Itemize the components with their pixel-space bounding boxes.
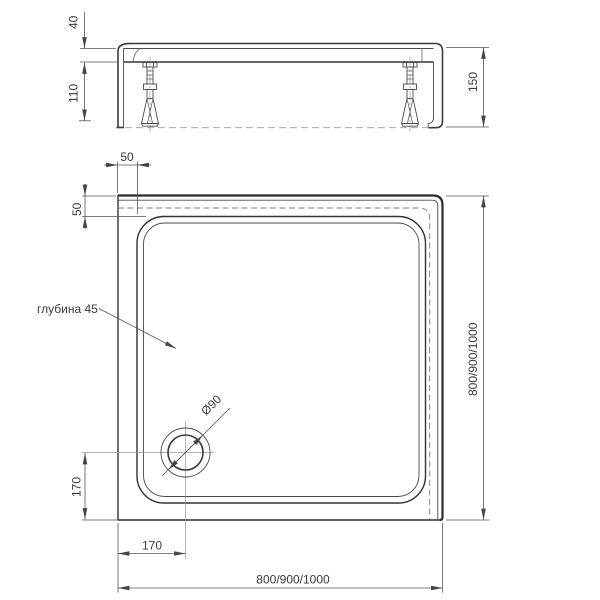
dim-drain-diameter-label: Ø90 — [198, 392, 224, 418]
dim-total-height-label: 150 — [466, 72, 480, 92]
dim-edge-offset-left-label: 50 — [70, 202, 84, 216]
dim-drain-offset-horizontal-label: 170 — [142, 539, 162, 553]
depth-annotation: глубина 45 — [37, 302, 176, 349]
side-view-right-band-inner — [428, 62, 433, 128]
dim-overall-width-label: 800/900/1000 — [256, 573, 330, 587]
side-view-left-corner-seam — [133, 49, 140, 63]
dim-overall-depth-label: 800/900/1000 — [466, 322, 480, 396]
side-view — [117, 44, 443, 133]
plan-view — [82, 196, 443, 559]
dim-rim-height-label: 40 — [67, 15, 81, 29]
side-view-outer-outline — [118, 44, 443, 128]
shower-tray-drawing: 40 110 150 — [0, 0, 600, 600]
dim-edge-offset-left: 50 — [70, 184, 146, 229]
dim-frame-height: 110 — [67, 63, 92, 121]
depth-note-label: глубина 45 — [37, 302, 98, 316]
dim-overall-width: 800/900/1000 — [118, 523, 443, 593]
dim-drain-offset-horizontal: 170 — [118, 523, 186, 593]
dim-edge-offset-top: 50 — [104, 150, 151, 214]
dim-total-height: 150 — [446, 48, 489, 128]
dim-rim-height: 40 — [67, 12, 118, 62]
technical-drawing-page: 40 110 150 — [0, 0, 600, 600]
leg-right — [402, 57, 419, 132]
dim-overall-depth: 800/900/1000 — [446, 196, 489, 520]
plan-hidden-frame-edge — [118, 208, 430, 519]
basin-inner-outline — [144, 223, 420, 497]
dim-drain-offset-vertical: 170 — [70, 453, 118, 520]
dim-edge-offset-top-label: 50 — [120, 150, 134, 164]
plan-rim-secondary-line — [118, 200, 438, 519]
dim-drain-offset-vertical-label: 170 — [70, 477, 84, 497]
side-view-dimensions: 40 110 150 — [67, 12, 490, 127]
leg-left — [142, 57, 159, 132]
dim-frame-height-label: 110 — [67, 84, 81, 103]
basin-outer-outline — [137, 217, 426, 504]
